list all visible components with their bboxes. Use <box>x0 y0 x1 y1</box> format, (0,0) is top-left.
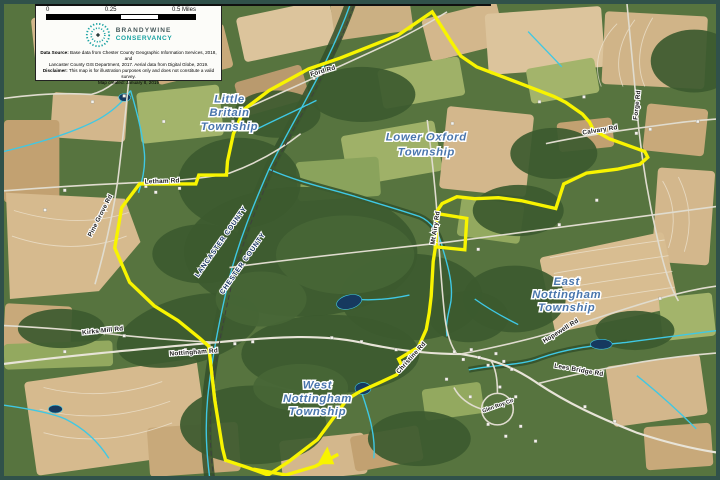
scale-tick-quarter: 0.25 <box>105 7 117 13</box>
logo-text-brandywine: BRANDYWINE <box>116 27 173 35</box>
road-label-lees-bridge-rd: Lees Bridge Rd <box>554 363 604 378</box>
title-block-divider <box>35 4 491 6</box>
township-label-west-nottingham-1: West <box>303 380 333 392</box>
road-label-forge-rd: Forge Rd <box>632 90 642 120</box>
scale-tick-zero: 0 <box>46 7 49 13</box>
township-label-lower-oxford-2: Township <box>398 146 455 158</box>
scale-bar-graphic <box>46 14 196 20</box>
township-label-little-britain-3: Township <box>201 121 258 133</box>
scale-tick-half-miles: 0.5 Miles <box>172 7 196 13</box>
township-label-east-nottingham-2: Nottingham <box>532 289 601 301</box>
township-label-little-britain-1: Little <box>214 93 245 105</box>
credits-created-date: Map created: January 8, 2019 <box>39 80 218 86</box>
brandywine-conservancy-logo: BRANDYWINE CONSERVANCY <box>36 22 221 48</box>
township-label-east-nottingham-1: East <box>553 276 580 288</box>
township-label-east-nottingham-3: Township <box>538 302 595 314</box>
township-label-little-britain-2: Britain <box>209 107 249 119</box>
road-label-glen-roy-cir: Glen Roy Cir <box>482 398 516 415</box>
township-label-west-nottingham-3: Township <box>289 406 346 418</box>
logo-text-conservancy: CONSERVANCY <box>116 35 173 43</box>
scale-bar: 0 0.25 0.5 Miles <box>46 7 196 20</box>
township-label-west-nottingham-2: Nottingham <box>283 393 352 405</box>
credits-data-source: Data Source: Base data from Chester Coun… <box>39 50 218 62</box>
legend-panel: 0 0.25 0.5 Miles BRANDYWINE CONSERVANCY … <box>35 4 222 81</box>
map-credits: Data Source: Base data from Chester Coun… <box>36 50 221 86</box>
credits-disclaimer: Disclaimer: This map is for illustration… <box>39 68 218 80</box>
township-label-lower-oxford-1: Lower Oxford <box>386 132 467 144</box>
conservancy-starburst-icon <box>85 22 111 48</box>
map-document: LANCASTER COUNTY CHESTER COUNTY Little B… <box>0 0 720 480</box>
road-label-letham-rd: Letham Rd <box>145 177 180 185</box>
